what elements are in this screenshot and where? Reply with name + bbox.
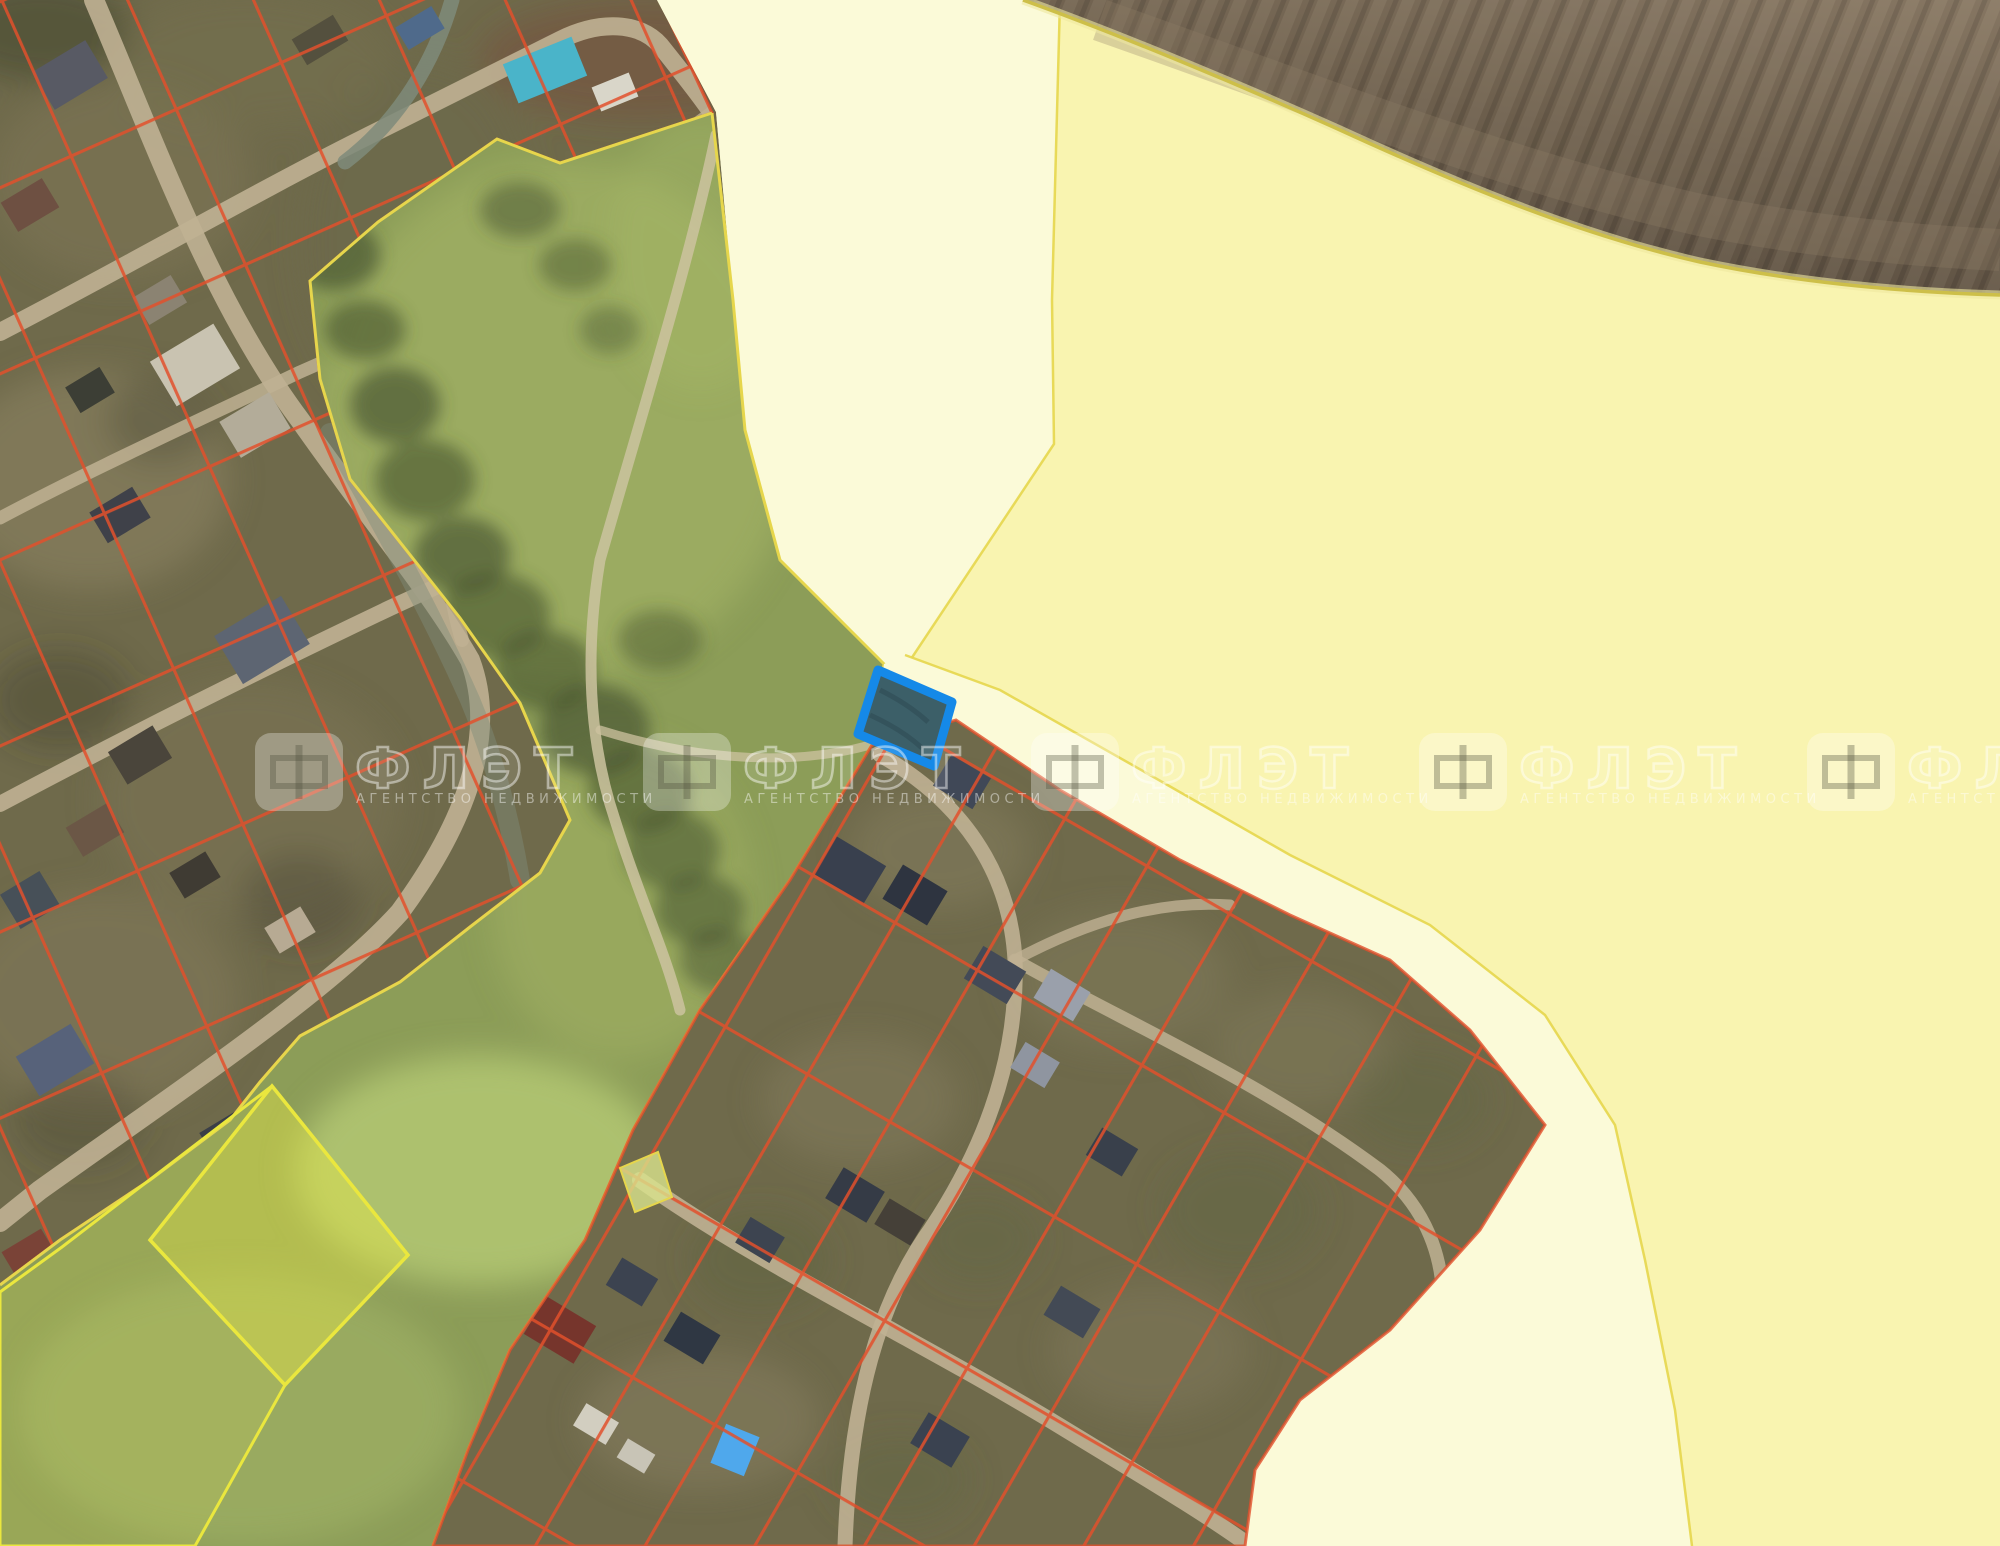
cadastral-map-svg[interactable]: ФЛЭТ АГЕНТСТВО НЕДВИЖИМОСТИ ФЛЭТ АГЕНТСТ… (0, 0, 2000, 1546)
watermark-subtitle: АГЕНТСТВО НЕДВИЖИМОСТИ (1132, 792, 1433, 807)
watermark-subtitle: АГЕНТСТВО НЕДВИЖИМОСТИ (1908, 792, 2000, 807)
map-canvas[interactable]: ФЛЭТ АГЕНТСТВО НЕДВИЖИМОСТИ ФЛЭТ АГЕНТСТ… (0, 0, 2000, 1546)
watermark-subtitle: АГЕНТСТВО НЕДВИЖИМОСТИ (356, 792, 657, 807)
watermark-subtitle: АГЕНТСТВО НЕДВИЖИМОСТИ (744, 792, 1045, 807)
watermark-subtitle: АГЕНТСТВО НЕДВИЖИМОСТИ (1520, 792, 1821, 807)
